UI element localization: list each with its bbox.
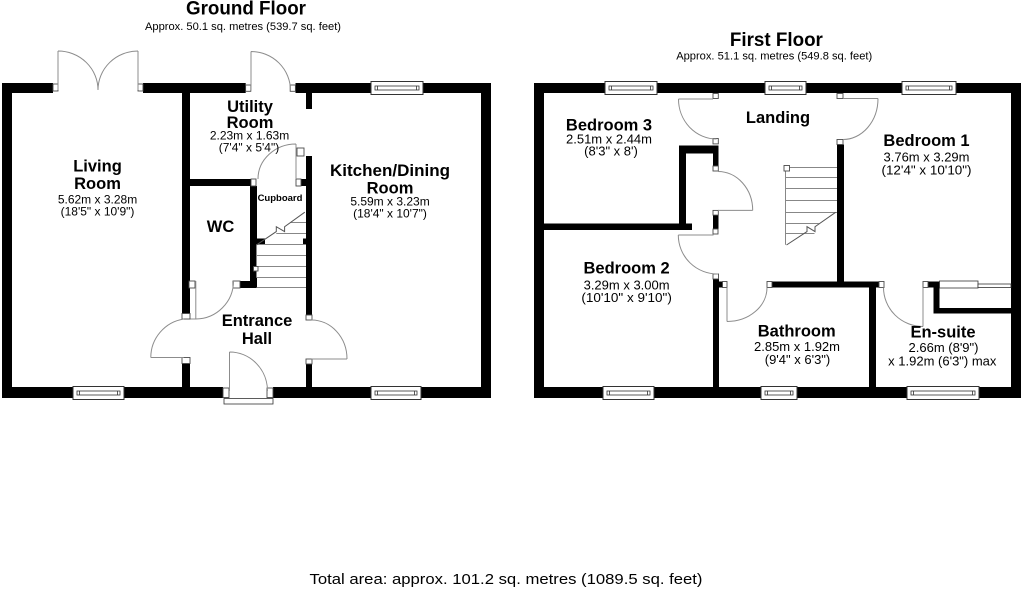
svg-text:Bedroom 2: Bedroom 2	[584, 260, 670, 278]
svg-text:Total area: approx. 101.2 sq.: Total area: approx. 101.2 sq. metres (10…	[310, 571, 703, 588]
svg-text:(8'3" x 8'): (8'3" x 8')	[584, 144, 638, 159]
svg-text:(7'4" x 5'4"): (7'4" x 5'4")	[219, 141, 279, 155]
svg-text:(9'4" x 6'3"): (9'4" x 6'3")	[765, 352, 831, 367]
svg-text:(18'4" x 10'7"): (18'4" x 10'7")	[353, 207, 427, 221]
svg-text:Cupboard: Cupboard	[258, 193, 303, 204]
svg-text:(10'10" x 9'10"): (10'10" x 9'10")	[581, 290, 672, 305]
svg-text:En-suite: En-suite	[910, 324, 975, 342]
svg-text:Landing: Landing	[746, 109, 810, 127]
svg-text:Bathroom: Bathroom	[758, 323, 836, 341]
svg-text:x 1.92m (6'3") max: x 1.92m (6'3") max	[888, 354, 997, 369]
svg-text:Hall: Hall	[242, 330, 272, 348]
svg-text:Bedroom 1: Bedroom 1	[883, 132, 969, 150]
svg-text:Entrance: Entrance	[222, 312, 293, 330]
svg-text:WC: WC	[207, 218, 235, 236]
svg-text:Living: Living	[73, 158, 122, 176]
svg-text:(12'4" x 10'10"): (12'4" x 10'10")	[882, 163, 972, 178]
svg-text:Ground Floor: Ground Floor	[186, 0, 307, 20]
svg-text:Room: Room	[74, 175, 121, 193]
svg-text:(18'5" x 10'9"): (18'5" x 10'9")	[61, 205, 135, 219]
svg-text:Approx. 50.1 sq. metres (539.7: Approx. 50.1 sq. metres (539.7 sq. feet)	[145, 21, 341, 33]
svg-text:Approx. 51.1 sq. metres (549.8: Approx. 51.1 sq. metres (549.8 sq. feet)	[676, 50, 872, 62]
svg-text:Kitchen/Dining: Kitchen/Dining	[330, 162, 450, 180]
svg-text:First Floor: First Floor	[730, 30, 824, 51]
